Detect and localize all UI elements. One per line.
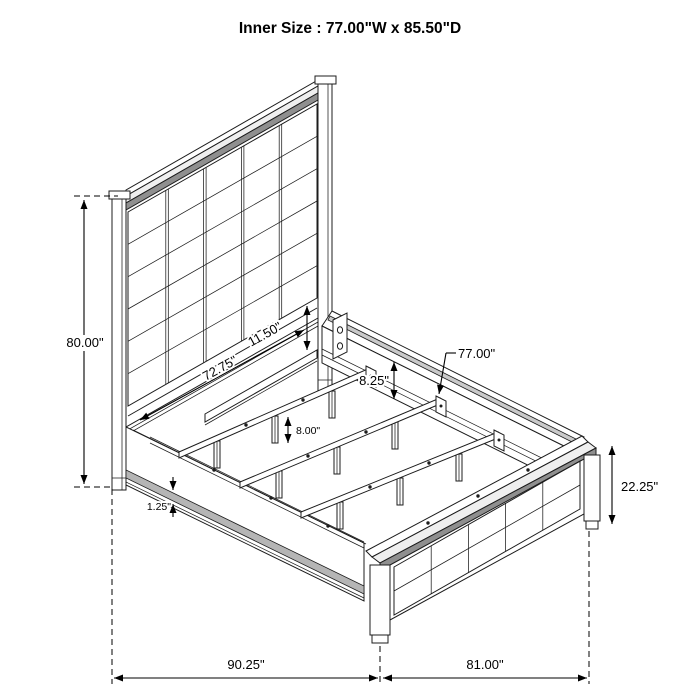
screw-hole <box>212 468 215 471</box>
inner-size-title: Inner Size : 77.00"W x 85.50"D <box>239 20 461 37</box>
dim-rail-trim-label: 1.25" <box>147 501 171 513</box>
screw-hole <box>526 468 529 471</box>
screw-hole <box>476 494 479 497</box>
bracket-hole <box>337 327 342 333</box>
screw-hole <box>364 430 367 433</box>
headboard-left-post-cap <box>109 191 130 199</box>
screw-hole <box>368 485 371 488</box>
dim-overall-width-label: 81.00" <box>466 657 504 672</box>
dim-slat-leg-height: 8.00" <box>288 417 320 443</box>
dim-overall-width: 81.00" <box>383 657 587 678</box>
screw-hole <box>306 454 309 457</box>
dim-footboard-height: 22.25" <box>612 446 659 524</box>
dim-overall-depth-label: 90.25" <box>227 657 265 672</box>
bracket-hole <box>337 343 342 349</box>
screw-hole <box>426 521 429 524</box>
screw-hole <box>244 423 247 426</box>
screw-hole <box>498 439 501 442</box>
dim-overall-depth: 90.25" <box>114 657 378 678</box>
footboard-left-foot <box>372 635 388 643</box>
dim-slat-leg-height-label: 8.00" <box>296 425 320 437</box>
screw-hole <box>440 405 443 408</box>
headboard-mounting-bracket <box>333 313 347 359</box>
dim-headboard-height: 80.00" <box>62 196 118 487</box>
diagram-canvas: Inner Size : 77.00"W x 85.50"D <box>0 0 700 700</box>
dim-side-rail-height-label: 8.25" <box>359 373 389 388</box>
screw-hole <box>269 496 272 499</box>
left-side-rail <box>126 427 366 601</box>
bed-assembly-drawing: Inner Size : 77.00"W x 85.50"D <box>0 0 700 700</box>
screw-hole <box>301 398 304 401</box>
footboard-right-post <box>584 455 600 521</box>
headboard-right-post-cap <box>315 76 336 84</box>
headboard-left-post <box>112 199 126 490</box>
footboard-left-post <box>370 565 390 635</box>
footboard-right-foot <box>586 521 598 529</box>
screw-hole <box>326 524 329 527</box>
screw-hole <box>427 461 430 464</box>
dim-headboard-height-label: 80.00" <box>66 335 104 350</box>
dim-footboard-height-label: 22.25" <box>621 479 659 494</box>
dim-slat-length-label: 77.00" <box>458 346 496 361</box>
